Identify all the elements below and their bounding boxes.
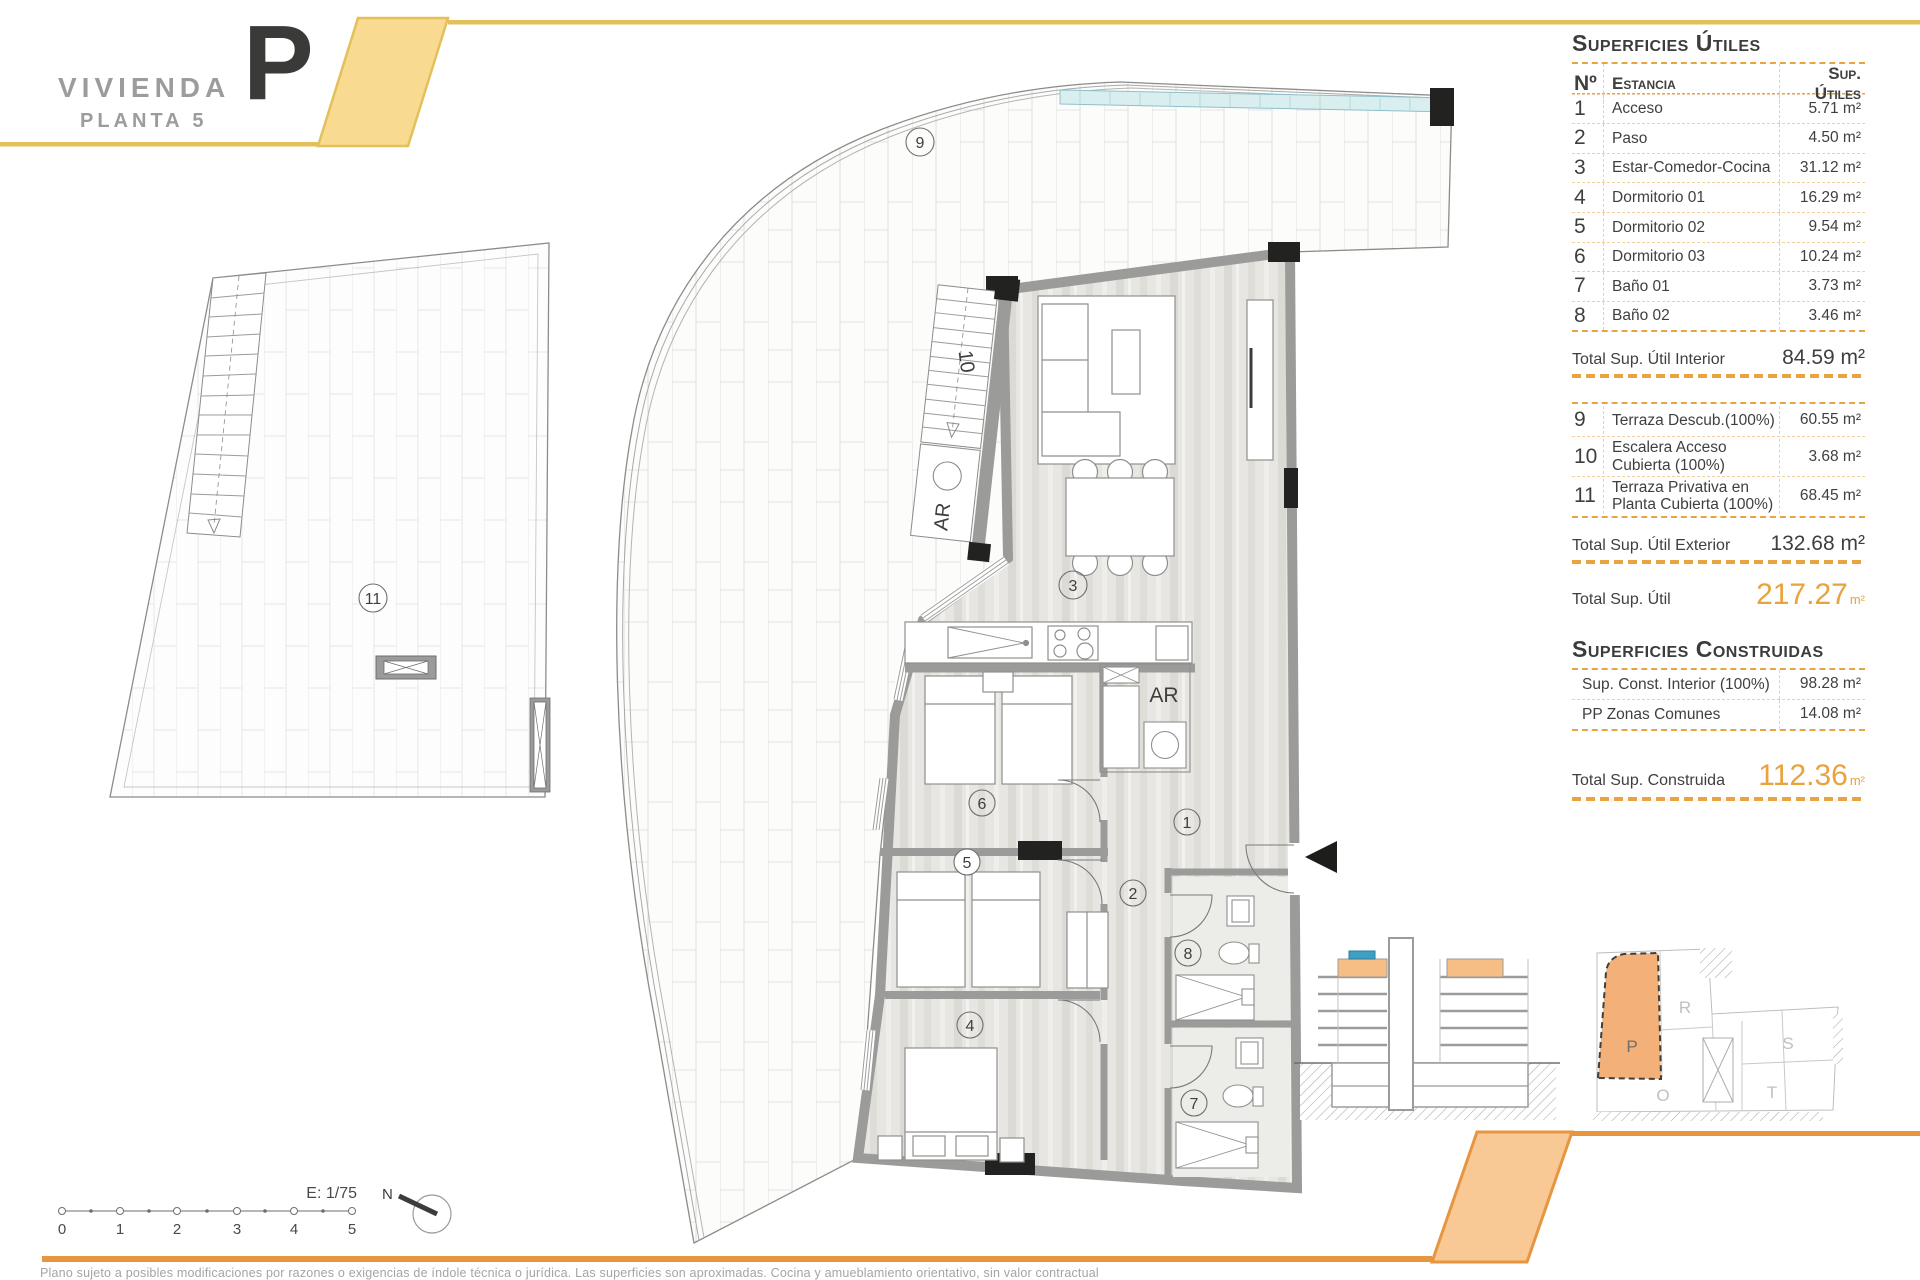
plan-sheet: 11 xyxy=(0,0,1920,1280)
svg-text:1: 1 xyxy=(116,1221,124,1238)
sheet-title: VIVIENDA xyxy=(58,72,230,104)
table-header: Nº Estancia Sup. Útiles xyxy=(1572,64,1865,94)
site-label-s: S xyxy=(1782,1034,1793,1053)
table-row: 7Baño 013.73 m² xyxy=(1572,271,1865,301)
superficies-construidas-title: Superficies Construidas xyxy=(1572,636,1865,663)
section-highlight-floor-right xyxy=(1447,959,1503,977)
svg-text:6: 6 xyxy=(978,796,987,813)
svg-text:5: 5 xyxy=(348,1221,356,1238)
table-row: 11 Terraza Privativa enPlanta Cubierta (… xyxy=(1572,476,1865,516)
table-row: 10 Escalera AccesoCubierta (100%) 3.68 m… xyxy=(1572,436,1865,476)
svg-text:N: N xyxy=(382,1186,393,1203)
table-row: 6Dormitorio 0310.24 m² xyxy=(1572,242,1865,272)
svg-text:2: 2 xyxy=(1129,886,1138,903)
svg-text:8: 8 xyxy=(1184,946,1193,963)
svg-text:4: 4 xyxy=(966,1018,975,1035)
total-exterior: Total Sup. Útil Exterior 132.68 m² xyxy=(1572,532,1865,556)
site-label-r: R xyxy=(1679,998,1691,1017)
table-row: Sup. Const. Interior (100%) 98.28 m² xyxy=(1572,670,1865,699)
superficies-utiles-table: Nº Estancia Sup. Útiles 1Acceso5.71 m² 2… xyxy=(1572,62,1865,332)
ar-closet-label-hall: AR xyxy=(1149,684,1178,707)
table-row: 1Acceso5.71 m² xyxy=(1572,94,1865,124)
room-label-11: 11 xyxy=(359,584,387,612)
roof-vent xyxy=(530,698,550,792)
site-label-p: P xyxy=(1626,1037,1637,1056)
table-row: 5Dormitorio 029.54 m² xyxy=(1572,212,1865,242)
north-arrow-icon: N xyxy=(382,1186,451,1233)
svg-text:5: 5 xyxy=(963,855,972,872)
site-label-o: O xyxy=(1656,1086,1669,1105)
entrance-arrow xyxy=(1305,841,1337,873)
divider xyxy=(1572,560,1865,564)
svg-text:E: 1/75: E: 1/75 xyxy=(306,1185,357,1202)
site-label-t: T xyxy=(1767,1083,1777,1102)
svg-text:1: 1 xyxy=(1183,815,1192,832)
building-section-diagram xyxy=(1294,938,1560,1120)
wall-block xyxy=(1430,88,1454,126)
svg-text:4: 4 xyxy=(290,1221,298,1238)
svg-text:7: 7 xyxy=(1190,1096,1199,1113)
table-row: 8Baño 023.46 m² xyxy=(1572,301,1865,331)
svg-text:2: 2 xyxy=(173,1221,181,1238)
dining-table xyxy=(1066,478,1174,556)
superficies-utiles-title: Superficies Útiles xyxy=(1572,30,1865,57)
svg-text:11: 11 xyxy=(365,591,382,608)
roof-skylight xyxy=(376,656,436,679)
room-label-10: 10 xyxy=(954,349,979,374)
svg-text:3: 3 xyxy=(1069,578,1078,595)
section-highlight-floor-left xyxy=(1338,959,1387,977)
table-row: 9 Terraza Descub.(100%) 60.55 m² xyxy=(1572,404,1865,436)
disclaimer-text: Plano sujeto a posibles modificaciones p… xyxy=(40,1266,1099,1280)
ar-closet-label-terrace: AR xyxy=(930,502,955,532)
svg-text:3: 3 xyxy=(233,1221,241,1238)
table-row: 3Estar-Comedor-Cocina31.12 m² xyxy=(1572,153,1865,183)
unit-letter: P xyxy=(243,3,314,124)
superficies-construidas-table: Sup. Const. Interior (100%) 98.28 m² PP … xyxy=(1572,668,1865,731)
svg-text:9: 9 xyxy=(916,135,925,152)
total-construida: Total Sup. Construida 112.36m² xyxy=(1572,759,1865,793)
site-key-plan: P R S T O xyxy=(1593,948,1843,1121)
coffee-table xyxy=(1112,330,1140,394)
superficies-exterior-table: 9 Terraza Descub.(100%) 60.55 m² 10 Esca… xyxy=(1572,402,1865,517)
total-interior: Total Sup. Útil Interior 84.59 m² xyxy=(1572,346,1865,370)
table-row: PP Zonas Comunes 14.08 m² xyxy=(1572,699,1865,729)
divider xyxy=(1572,797,1865,801)
kitchen-counter xyxy=(905,622,1192,663)
svg-text:0: 0 xyxy=(58,1221,66,1238)
scale-bar: E: 1/75 01 23 45 xyxy=(58,1185,357,1238)
sheet-subtitle: PLANTA 5 xyxy=(80,110,208,133)
table-row: 2Paso4.50 m² xyxy=(1572,123,1865,153)
total-util: Total Sup. Útil 217.27m² xyxy=(1572,578,1865,612)
roof-terrace-plan: 11 xyxy=(110,243,550,797)
surfaces-panel: Superficies Útiles Nº Estancia Sup. Útil… xyxy=(1572,30,1865,801)
section-pool xyxy=(1349,951,1375,959)
table-row: 4Dormitorio 0116.29 m² xyxy=(1572,182,1865,212)
site-unit-p-highlight xyxy=(1598,953,1661,1079)
